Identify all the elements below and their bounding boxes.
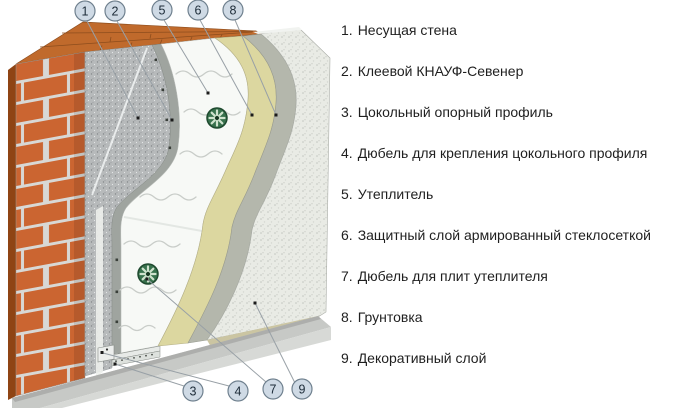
legend-item-label: Защитный слой армированный стеклосеткой: [358, 227, 651, 243]
legend-item-number: 9.: [341, 350, 353, 366]
legend-item-number: 3.: [341, 104, 353, 120]
legend-item-label: Несущая стена: [358, 22, 457, 38]
svg-text:3: 3: [190, 385, 197, 399]
brick-wall-side-face: [8, 64, 16, 400]
callout-5: 5: [152, 0, 172, 20]
legend-item-5: 5.Утеплитель: [341, 186, 677, 202]
wall-insulation-scheme: 1 2 5 6 8 3 4 7: [0, 0, 680, 408]
legend-item-6: 6.Защитный слой армированный стеклосетко…: [341, 227, 677, 243]
legend-item-2: 2.Клеевой КНАУФ-Севенер: [341, 63, 677, 79]
legend-item-number: 4.: [341, 145, 353, 161]
callout-1: 1: [75, 1, 95, 21]
legend-item-number: 8.: [341, 309, 353, 325]
callout-3: 3: [183, 381, 203, 401]
legend: 1.Несущая стена 2.Клеевой КНАУФ-Севенер …: [341, 22, 677, 391]
insulation-dowel-icon: [138, 264, 158, 284]
callout-4: 4: [228, 381, 248, 401]
legend-item-9: 9.Декоративный слой: [341, 350, 677, 366]
legend-item-number: 6.: [341, 227, 353, 243]
legend-item-label: Грунтовка: [358, 309, 423, 325]
callout-7: 7: [263, 379, 283, 399]
svg-text:8: 8: [230, 4, 237, 18]
legend-item-label: Декоративный слой: [358, 350, 487, 366]
brick-wall-corner-shade: [74, 52, 85, 381]
svg-text:7: 7: [270, 383, 277, 397]
legend-item-number: 1.: [341, 22, 353, 38]
legend-item-7: 7.Дюбель для плит утеплителя: [341, 268, 677, 284]
insulation-dowel-icon: [207, 108, 227, 128]
legend-item-number: 5.: [341, 186, 353, 202]
svg-text:9: 9: [299, 383, 306, 397]
legend-item-3: 3.Цокольный опорный профиль: [341, 104, 677, 120]
legend-item-4: 4.Дюбель для крепления цокольного профил…: [341, 145, 677, 161]
callout-8: 8: [223, 0, 243, 20]
svg-text:1: 1: [82, 5, 89, 19]
svg-text:5: 5: [159, 4, 166, 18]
svg-text:6: 6: [195, 4, 202, 18]
callout-6: 6: [188, 0, 208, 20]
legend-item-number: 2.: [341, 63, 353, 79]
legend-item-label: Дюбель для крепления цокольного профиля: [358, 145, 648, 161]
legend-item-8: 8.Грунтовка: [341, 309, 677, 325]
legend-item-label: Клеевой КНАУФ-Севенер: [358, 63, 524, 79]
callout-9: 9: [292, 379, 312, 399]
legend-item-label: Дюбель для плит утеплителя: [358, 268, 548, 284]
legend-item-number: 7.: [341, 268, 353, 284]
svg-text:2: 2: [112, 5, 119, 19]
legend-item-1: 1.Несущая стена: [341, 22, 677, 38]
callout-2: 2: [105, 1, 125, 21]
legend-item-label: Утеплитель: [358, 186, 434, 202]
legend-item-label: Цокольный опорный профиль: [358, 104, 553, 120]
wall-insulation-diagram: 1 2 5 6 8 3 4 7: [0, 0, 335, 408]
svg-text:4: 4: [235, 385, 242, 399]
